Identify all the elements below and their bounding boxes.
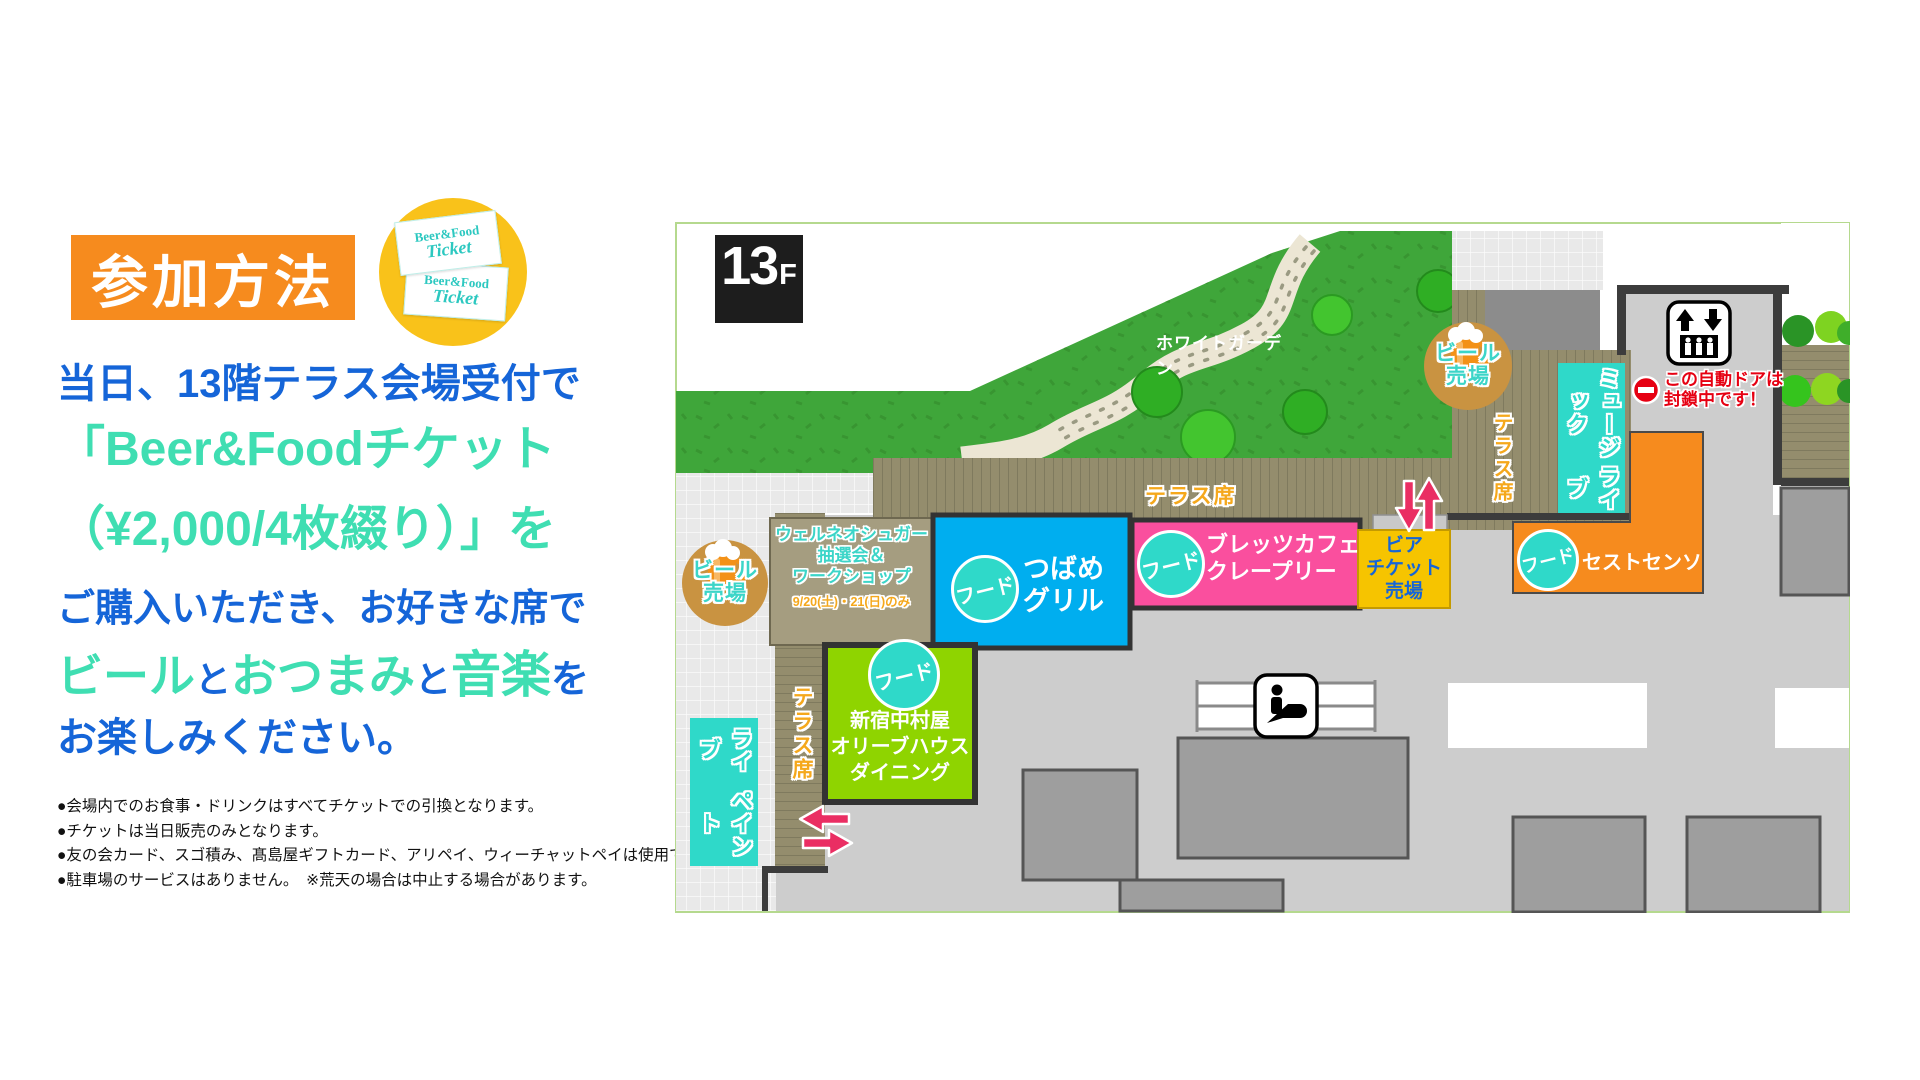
shop-label-bretz: ブレッツカフェ クレープリー [1206,531,1360,585]
terrace-label-vertical-left: テラス席 [786,686,816,782]
headline-line4: ご購入いただき、お好きな席で [57,590,586,628]
note-item: ●友の会カード、スゴ積み、髙島屋ギフトカード、アリペイ、ウィーチャットペイは使用… [57,844,762,869]
beer-stand-right-label: ビール 売場 [1420,342,1516,388]
white-garden-label: ホワイトガーデン [1156,329,1296,379]
headline-line1: 当日、13階テラス会場受付で [57,364,581,404]
ticket-illustration: Beer&Food Ticket Beer&Food Ticket [379,198,527,346]
music-live-banner-label: ミュージック ライブ [1558,363,1625,513]
terrace-label-horizontal: テラス席 [1145,480,1237,510]
shop-label-tsubame: つばめ グリル [1023,553,1104,617]
wellneo-date: 9/20(土)・21(日)のみ [770,591,933,610]
shop-label-sesto: セストセンソ [1582,546,1702,575]
how-to-join-badge: 参加方法 [71,235,355,320]
floor-badge: 13F [715,235,803,323]
food-badge-icon: フード [868,639,940,711]
terrace-label-vertical-right: テラス席 [1487,412,1516,504]
headline-line5: ビールとおつまみと音楽を [57,650,589,700]
headline-line3: （¥2,000/4枚綴り）」を [57,506,556,554]
no-entry-icon [1633,377,1659,403]
live-paint-banner-label: ライブ ペイント [690,718,758,866]
note-item: ●駐車場のサービスはありません。 ※荒天の場合は中止する場合があります。 [57,869,762,894]
headline-line6: お楽しみください。 [57,718,417,758]
beer-stand-left-label: ビール 売場 [677,559,773,605]
door-closed-notice: この自動ドアは 封鎖中です！ [1664,370,1783,410]
note-item: ●チケットは当日販売のみとなります。 [57,820,762,845]
elevator-icon [1668,302,1730,364]
wellneo-booth-label: ウェルネオシュガー 抽選会＆ ワークショップ 9/20(土)・21(日)のみ [770,524,933,610]
escalator-icon [1255,675,1317,737]
food-badge-icon: フード [1517,529,1579,591]
headline-line2: 「Beer&Foodチケット [57,426,556,474]
beer-ticket-booth-label: ビア チケット 売場 [1358,534,1450,603]
headline-seg: ビール [57,650,195,702]
notes-list: ●会場内でのお食事・ドリンクはすべてチケットでの引換となります。 ●チケットは当… [57,795,762,893]
note-item: ●会場内でのお食事・ドリンクはすべてチケットでの引換となります。 [57,795,762,820]
shop-label-nakamuraya: 新宿中村屋 オリーブハウス ダイニング [825,708,975,786]
food-badge-icon: フード [951,555,1019,623]
floor-number: 13 [721,235,777,297]
food-badge-icon: フード [1137,530,1205,598]
